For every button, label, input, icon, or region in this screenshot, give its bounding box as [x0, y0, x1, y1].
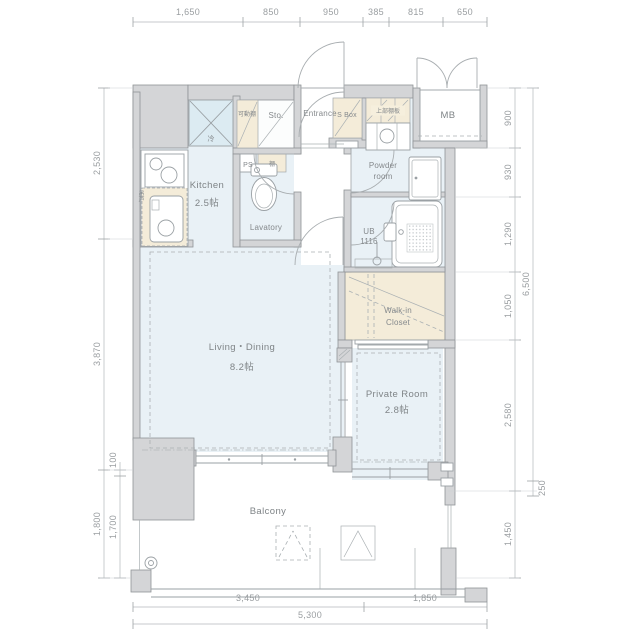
entrance-step-shelf: [336, 141, 358, 148]
window-jamb: [441, 478, 453, 486]
refrigerator-label: 冷: [208, 134, 215, 143]
dim-label: 2,580: [503, 403, 513, 427]
window-jamb: [441, 463, 453, 471]
dim-label: 1,800: [92, 512, 102, 536]
dim-label: 100: [108, 452, 118, 468]
upper-shelf-label: 上部棚板: [376, 107, 400, 115]
dim-label: 815: [408, 7, 424, 17]
entrance-label: Entrance: [303, 109, 337, 118]
entrance-door-swing: [298, 42, 344, 88]
dim-label: 1,450: [503, 522, 513, 546]
balcony-partition-symbol: [341, 526, 375, 560]
hanging-cupboard-label: 吊戸: [137, 190, 144, 203]
dim-label: 900: [503, 110, 513, 126]
balcony-label: Balcony: [250, 506, 287, 517]
balcony-drain: [145, 557, 157, 569]
dim-label: 3,870: [92, 342, 102, 366]
movable-shelf-label: 可動棚: [238, 110, 256, 118]
dim-label: 850: [263, 7, 279, 17]
closet-sliding-door: [355, 340, 428, 344]
toilet: [251, 164, 277, 211]
living-dining-size-label: 8.2帖: [230, 361, 254, 373]
shoe-box-label: S Box: [337, 112, 357, 119]
dim-label: 930: [503, 164, 513, 180]
ub-door-handle: [384, 223, 396, 241]
bathtub: [392, 201, 442, 267]
closet-sliding-door-2: [358, 345, 428, 349]
meter-box-door-left: [417, 58, 447, 88]
living-dining-label: Living・Dining: [209, 342, 275, 353]
walkin-closet-label: Walk-in: [384, 306, 412, 315]
dim-label: 650: [457, 7, 473, 17]
washer-space: [409, 157, 441, 200]
kitchen-size-label: 2.5帖: [195, 197, 219, 209]
dim-label: 385: [368, 7, 384, 17]
vanity-counter: [366, 123, 410, 150]
powder-room-label-2: room: [373, 172, 392, 181]
dim-label: 950: [323, 7, 339, 17]
private-room-size-label: 2.8帖: [385, 404, 409, 416]
dim-label: 6,500: [521, 272, 531, 296]
dim-label: 3,450: [236, 593, 260, 603]
meter-box-label: MB: [440, 110, 455, 121]
dim-label: 1,850: [413, 593, 437, 603]
kitchen-stove: [150, 196, 183, 242]
dim-label: 5,300: [298, 610, 322, 620]
pipe-space-label: PS: [243, 162, 253, 169]
dim-label: 250: [537, 480, 547, 496]
living-door-swing: [295, 217, 343, 265]
powder-room-label: Powder: [369, 161, 397, 170]
floor-plan-page: 1,650 850 950 385 815 650 3,450 1,850 5,…: [0, 0, 640, 640]
evacuation-hatch-symbol: [276, 526, 310, 560]
storage-label: Sto.: [268, 111, 283, 120]
dim-label: 1,650: [176, 7, 200, 17]
shelf-label: 棚: [269, 160, 275, 168]
unit-bath-label: UB: [363, 227, 375, 236]
dim-label: 1,050: [503, 294, 513, 318]
dim-label: 1,290: [503, 222, 513, 246]
dim-label: 1,700: [108, 515, 118, 539]
private-room-label: Private Room: [366, 389, 428, 400]
walkin-closet-label-2: Closet: [386, 318, 410, 327]
floor-plan-drawing: 1,650 850 950 385 815 650 3,450 1,850 5,…: [0, 0, 640, 640]
meter-box-door-right: [447, 58, 477, 88]
lavatory-label: Lavatory: [250, 223, 282, 232]
unit-bath-size-label: 1116: [360, 237, 378, 246]
dim-label: 2,530: [92, 151, 102, 175]
kitchen-label: Kitchen: [190, 180, 225, 191]
